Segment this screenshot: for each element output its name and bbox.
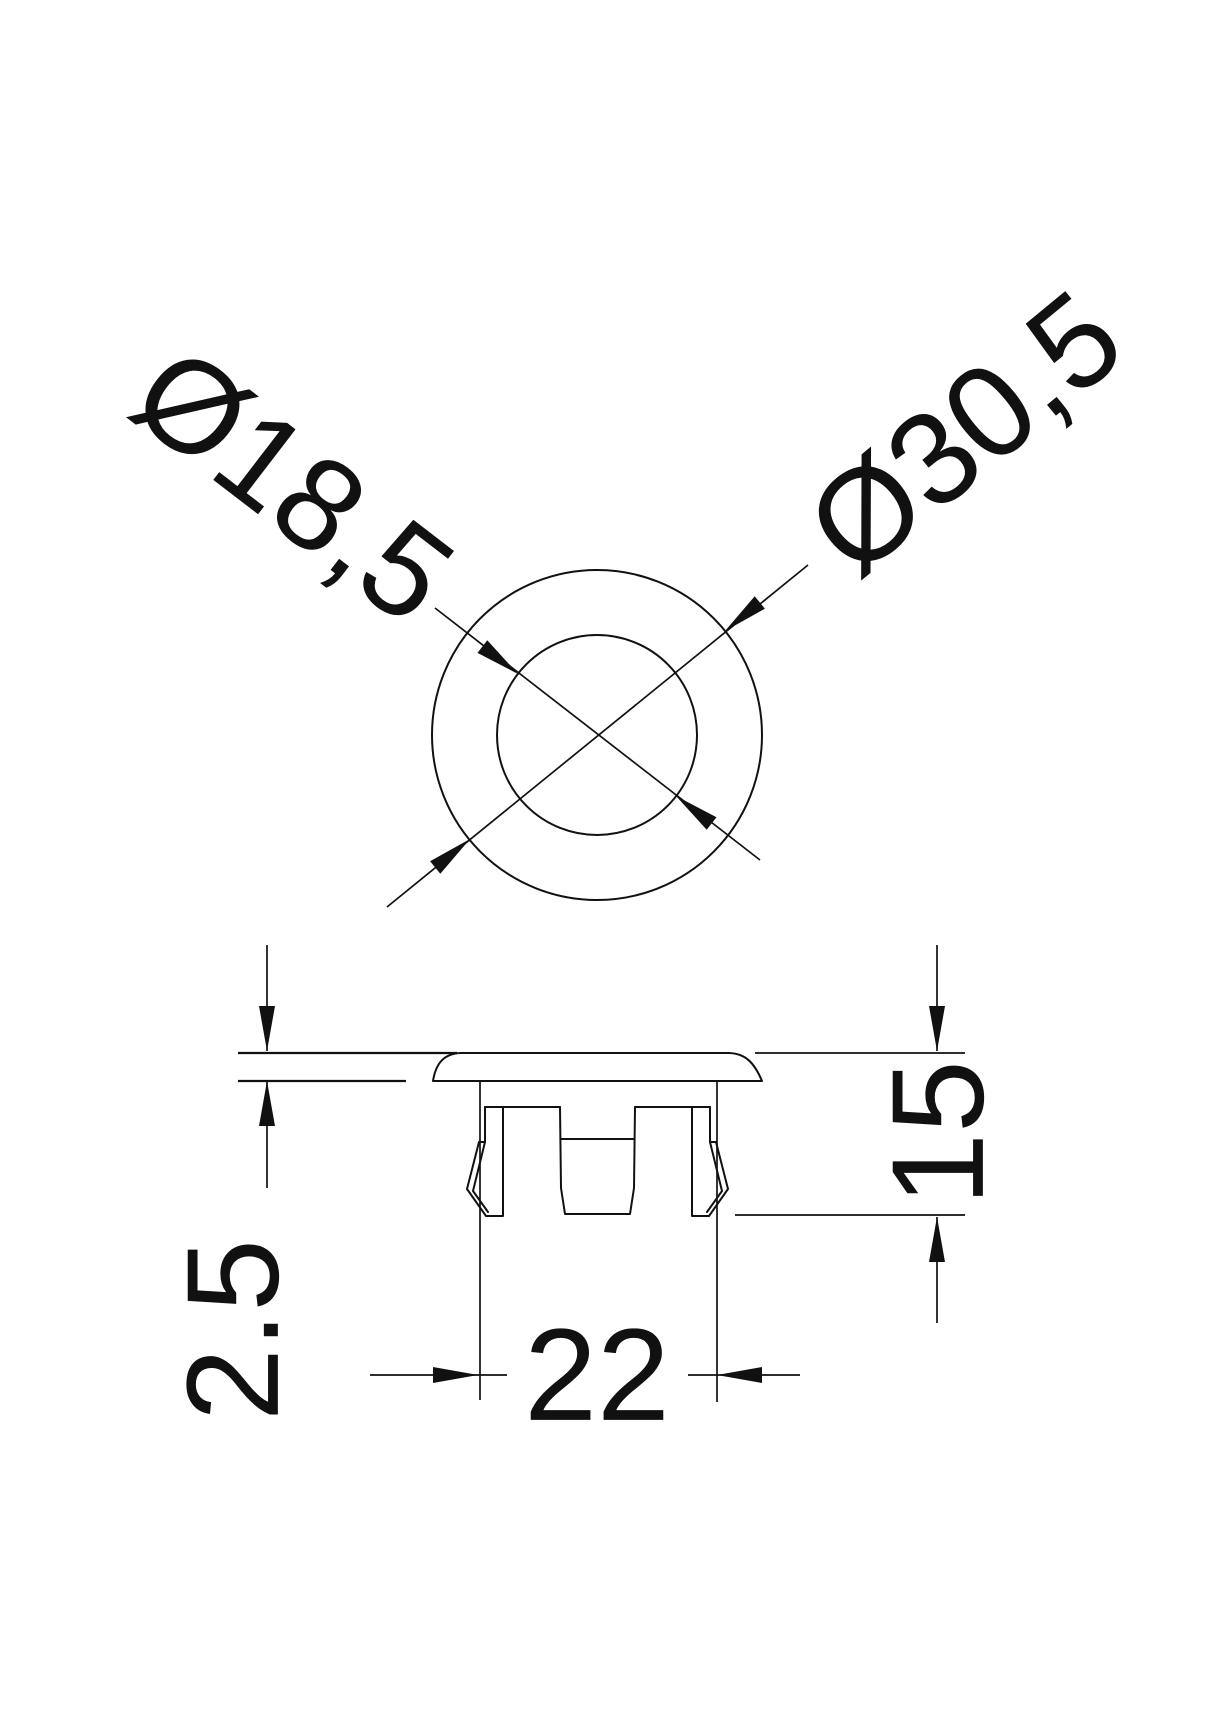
cap-thickness-arrowhead-bottom <box>259 1081 275 1126</box>
barrel-width-dimension: 22 <box>370 1301 800 1448</box>
right-snap-leg <box>692 1107 728 1216</box>
cap-thickness-dimension: 2.5 <box>159 945 306 1421</box>
overall-height-dimension: 15 <box>864 945 1011 1323</box>
center-bridge <box>560 1107 635 1214</box>
inner-diameter-arrowhead-lower <box>676 796 717 830</box>
inner-diameter-arrowhead-upper <box>478 640 519 674</box>
inner-diameter-label: Ø18,5 <box>107 317 480 651</box>
barrel-width-arrowhead-left <box>433 1367 478 1383</box>
side-view: 2.5 15 22 <box>159 945 1011 1448</box>
drawing-sheet: Ø18,5 Ø30,5 2.5 <box>0 0 1214 1718</box>
outer-diameter-arrowhead-lower <box>430 839 470 874</box>
inner-circle <box>497 635 697 835</box>
left-snap-leg <box>467 1107 503 1216</box>
barrel-width-label: 22 <box>524 1301 670 1448</box>
technical-drawing: Ø18,5 Ø30,5 2.5 <box>0 0 1214 1718</box>
outer-circle <box>432 570 762 900</box>
barrel-width-arrowhead-right <box>717 1367 762 1383</box>
cap-profile <box>433 1053 762 1081</box>
top-view: Ø18,5 Ø30,5 <box>107 262 1148 907</box>
overall-height-arrowhead-top <box>929 1006 945 1051</box>
outer-diameter-label: Ø30,5 <box>780 262 1149 602</box>
cap-thickness-arrowhead-top <box>259 1006 275 1051</box>
cap-thickness-label: 2.5 <box>159 1239 306 1421</box>
overall-height-label: 15 <box>864 1060 1011 1206</box>
overall-height-arrowhead-bottom <box>929 1217 945 1262</box>
outer-diameter-arrowhead-upper <box>725 596 765 631</box>
